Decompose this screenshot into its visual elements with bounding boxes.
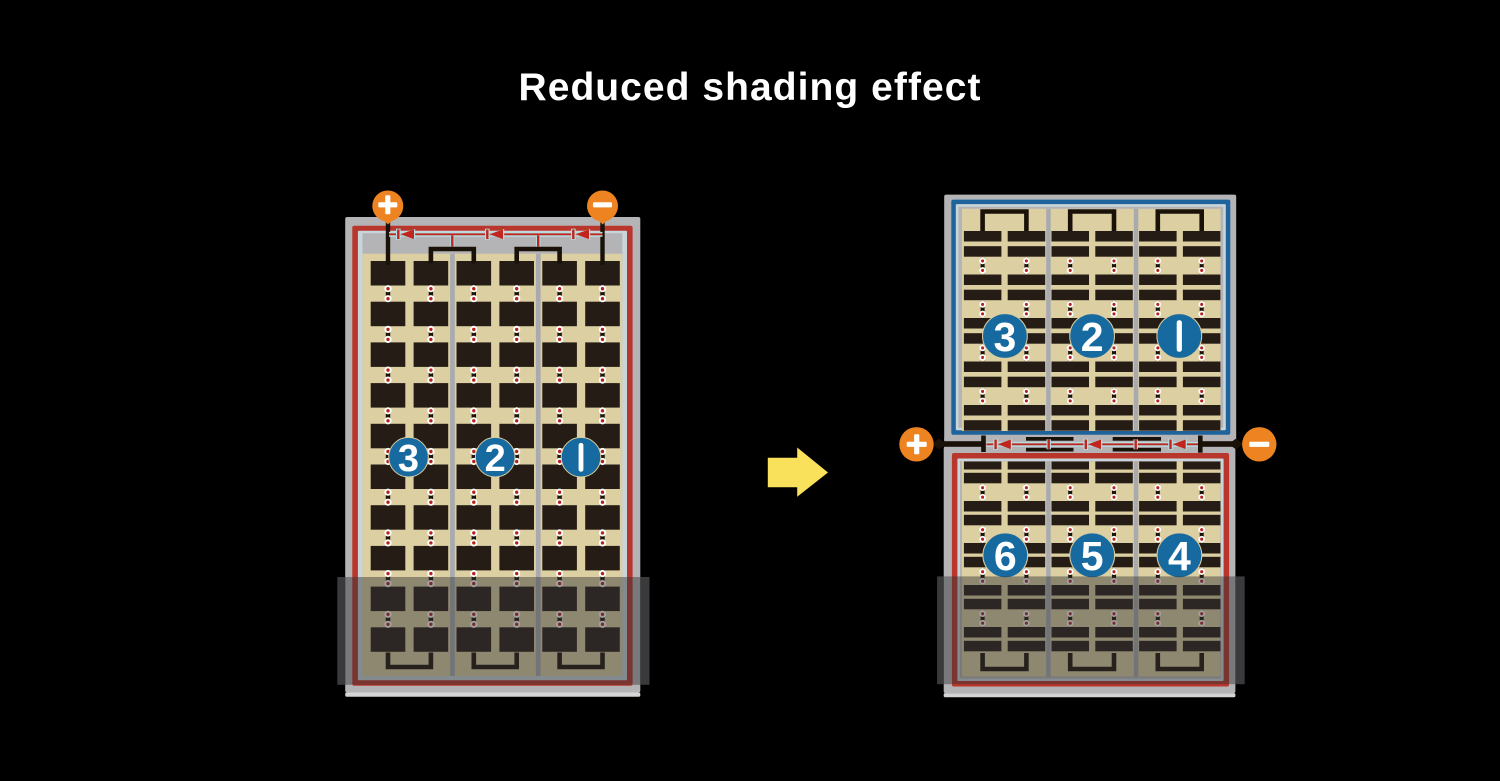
svg-text:2: 2 — [1081, 314, 1104, 360]
svg-text:6: 6 — [994, 533, 1017, 579]
svg-text:3: 3 — [398, 438, 419, 480]
svg-text:Reduced shading effect: Reduced shading effect — [518, 66, 981, 109]
svg-text:5: 5 — [1081, 533, 1104, 579]
svg-text:2: 2 — [485, 438, 506, 480]
svg-text:3: 3 — [993, 314, 1016, 360]
svg-text:4: 4 — [1168, 533, 1191, 579]
